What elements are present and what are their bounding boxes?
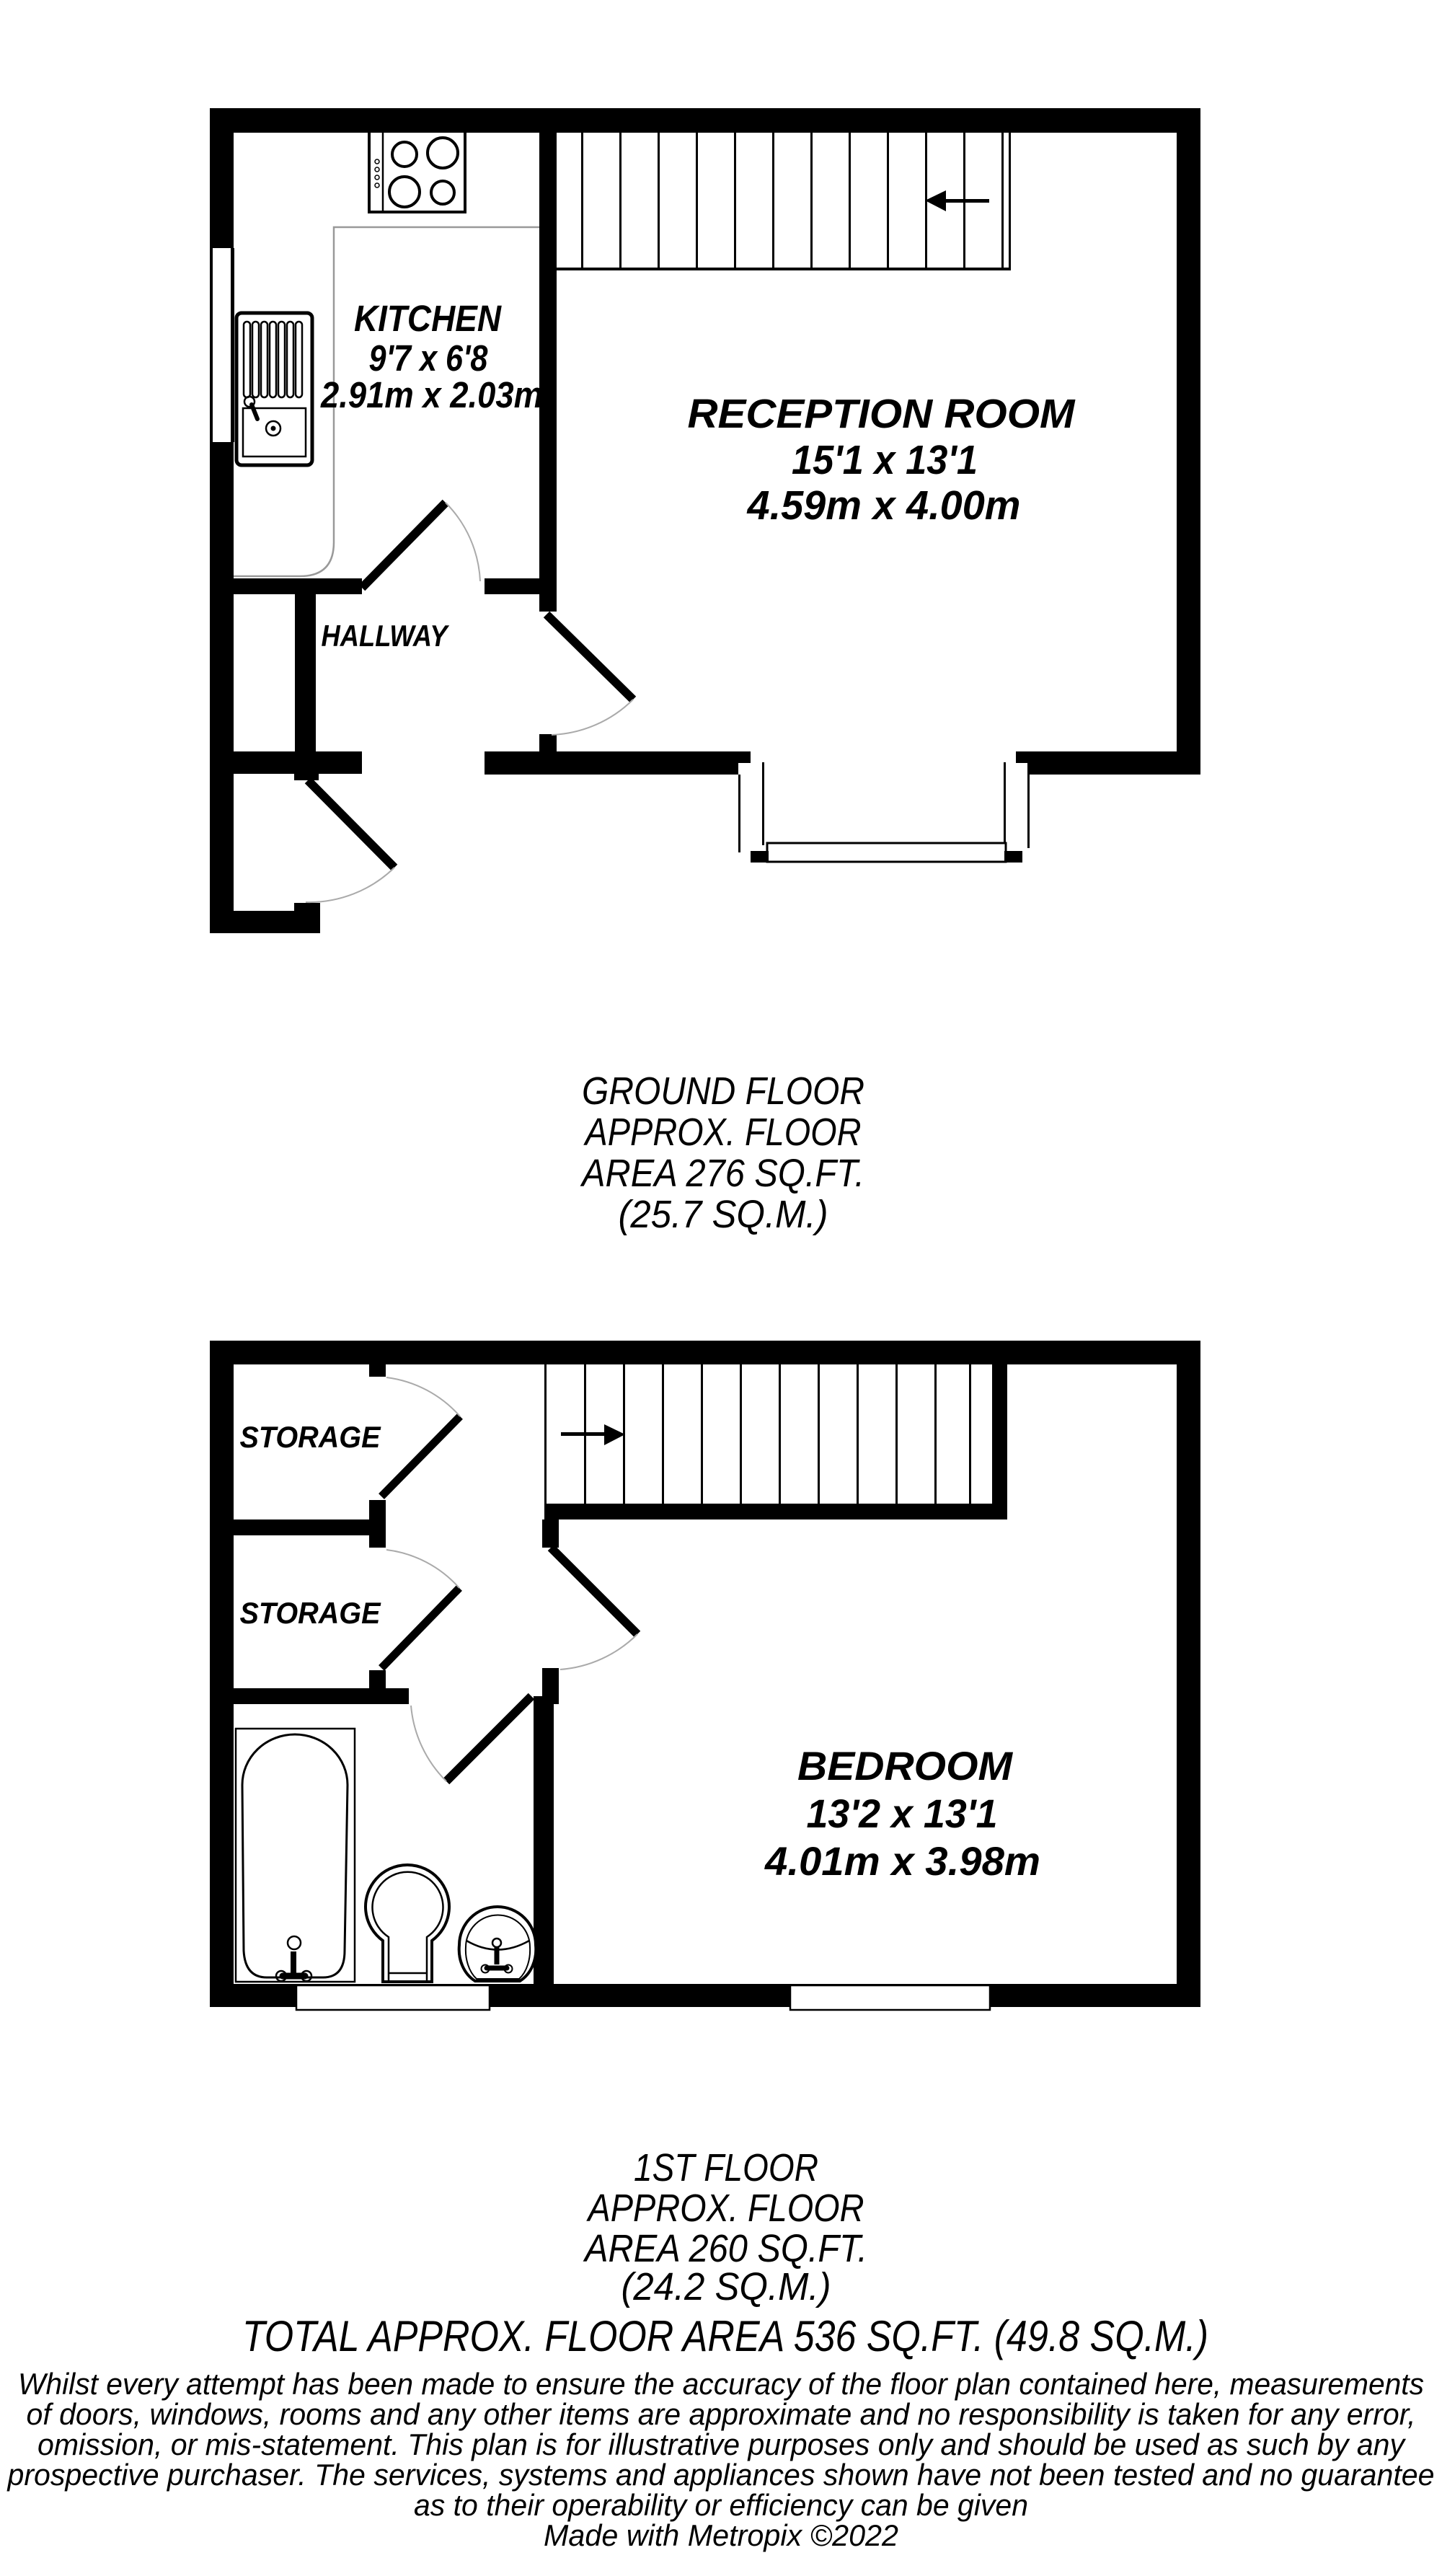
svg-text:(25.7 SQ.M.): (25.7 SQ.M.) [619, 1193, 828, 1236]
svg-text:1ST FLOOR: 1ST FLOOR [634, 2146, 818, 2189]
svg-text:RECEPTION ROOM: RECEPTION ROOM [688, 391, 1076, 437]
svg-text:TOTAL APPROX. FLOOR AREA 536 S: TOTAL APPROX. FLOOR AREA 536 SQ.FT. (49.… [242, 2312, 1208, 2360]
svg-text:of doors, windows, rooms and a: of doors, windows, rooms and any other i… [27, 2397, 1416, 2431]
svg-text:prospective purchaser. The ser: prospective purchaser. The services, sys… [6, 2458, 1435, 2492]
svg-text:APPROX. FLOOR: APPROX. FLOOR [586, 2187, 864, 2230]
svg-text:15'1 x 13'1: 15'1 x 13'1 [792, 437, 978, 483]
svg-text:4.01m x 3.98m: 4.01m x 3.98m [764, 1838, 1040, 1884]
svg-text:4.59m x 4.00m: 4.59m x 4.00m [747, 482, 1021, 529]
svg-text:HALLWAY: HALLWAY [322, 619, 450, 653]
svg-text:GROUND FLOOR: GROUND FLOOR [582, 1069, 864, 1113]
svg-text:Made with Metropix ©2022: Made with Metropix ©2022 [544, 2518, 898, 2552]
svg-text:STORAGE: STORAGE [240, 1596, 382, 1630]
svg-text:BEDROOM: BEDROOM [797, 1743, 1013, 1788]
svg-text:as to their operability or eff: as to their operability or efficiency ca… [414, 2488, 1028, 2522]
svg-text:omission, or mis-statement. Th: omission, or mis-statement. This plan is… [37, 2427, 1407, 2461]
svg-text:KITCHEN: KITCHEN [354, 298, 502, 339]
svg-text:APPROX. FLOOR: APPROX. FLOOR [583, 1111, 862, 1154]
svg-text:AREA 276 SQ.FT.: AREA 276 SQ.FT. [580, 1152, 864, 1195]
svg-text:9'7 x 6'8: 9'7 x 6'8 [369, 338, 489, 379]
svg-text:STORAGE: STORAGE [240, 1420, 382, 1454]
svg-text:Whilst every attempt has been: Whilst every attempt has been made to en… [18, 2367, 1424, 2401]
svg-text:2.91m x 2.03m: 2.91m x 2.03m [320, 374, 543, 415]
svg-text:(24.2 SQ.M.): (24.2 SQ.M.) [622, 2265, 831, 2308]
svg-text:13'2 x 13'1: 13'2 x 13'1 [807, 1791, 998, 1836]
svg-text:AREA 260 SQ.FT.: AREA 260 SQ.FT. [583, 2227, 867, 2270]
